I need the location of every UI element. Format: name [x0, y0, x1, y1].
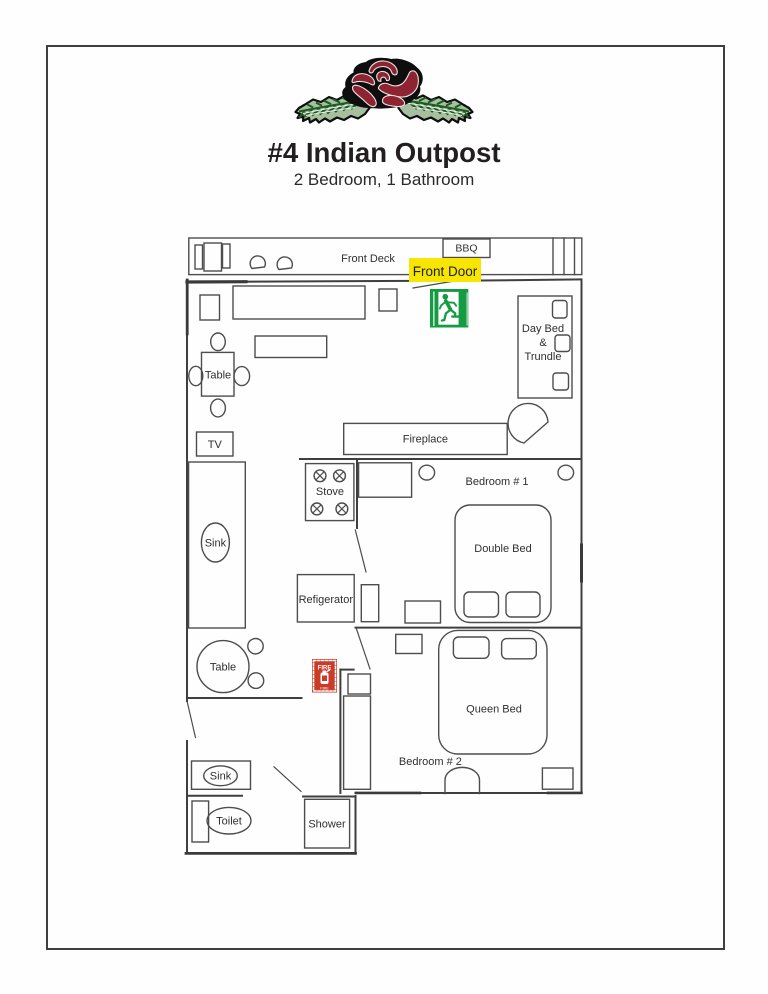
- svg-text:Fireplace: Fireplace: [403, 434, 448, 446]
- svg-text:Trundle: Trundle: [525, 351, 562, 363]
- svg-text:&: &: [539, 337, 547, 349]
- svg-text:Table: Table: [210, 662, 236, 674]
- svg-text:Stove: Stove: [316, 486, 344, 498]
- svg-text:BBQ: BBQ: [455, 243, 477, 255]
- svg-text:Double Bed: Double Bed: [474, 543, 532, 555]
- svg-text:Table: Table: [205, 370, 231, 382]
- svg-text:Sink: Sink: [210, 771, 232, 783]
- svg-text:Refigerator: Refigerator: [299, 594, 354, 606]
- svg-text:Front Deck: Front Deck: [341, 253, 395, 265]
- svg-text:Day Bed: Day Bed: [522, 323, 564, 335]
- svg-text:Sink: Sink: [205, 538, 227, 550]
- svg-text:TV: TV: [208, 439, 223, 451]
- svg-text:Bedroom # 1: Bedroom # 1: [466, 476, 529, 488]
- svg-text:Bedroom # 2: Bedroom # 2: [399, 756, 462, 768]
- svg-text:Toilet: Toilet: [216, 816, 242, 828]
- svg-text:Queen Bed: Queen Bed: [466, 704, 522, 716]
- svg-text:Front Door: Front Door: [413, 264, 478, 279]
- svg-text:Shower: Shower: [308, 819, 346, 831]
- svg-text:FIRE: FIRE: [320, 687, 329, 691]
